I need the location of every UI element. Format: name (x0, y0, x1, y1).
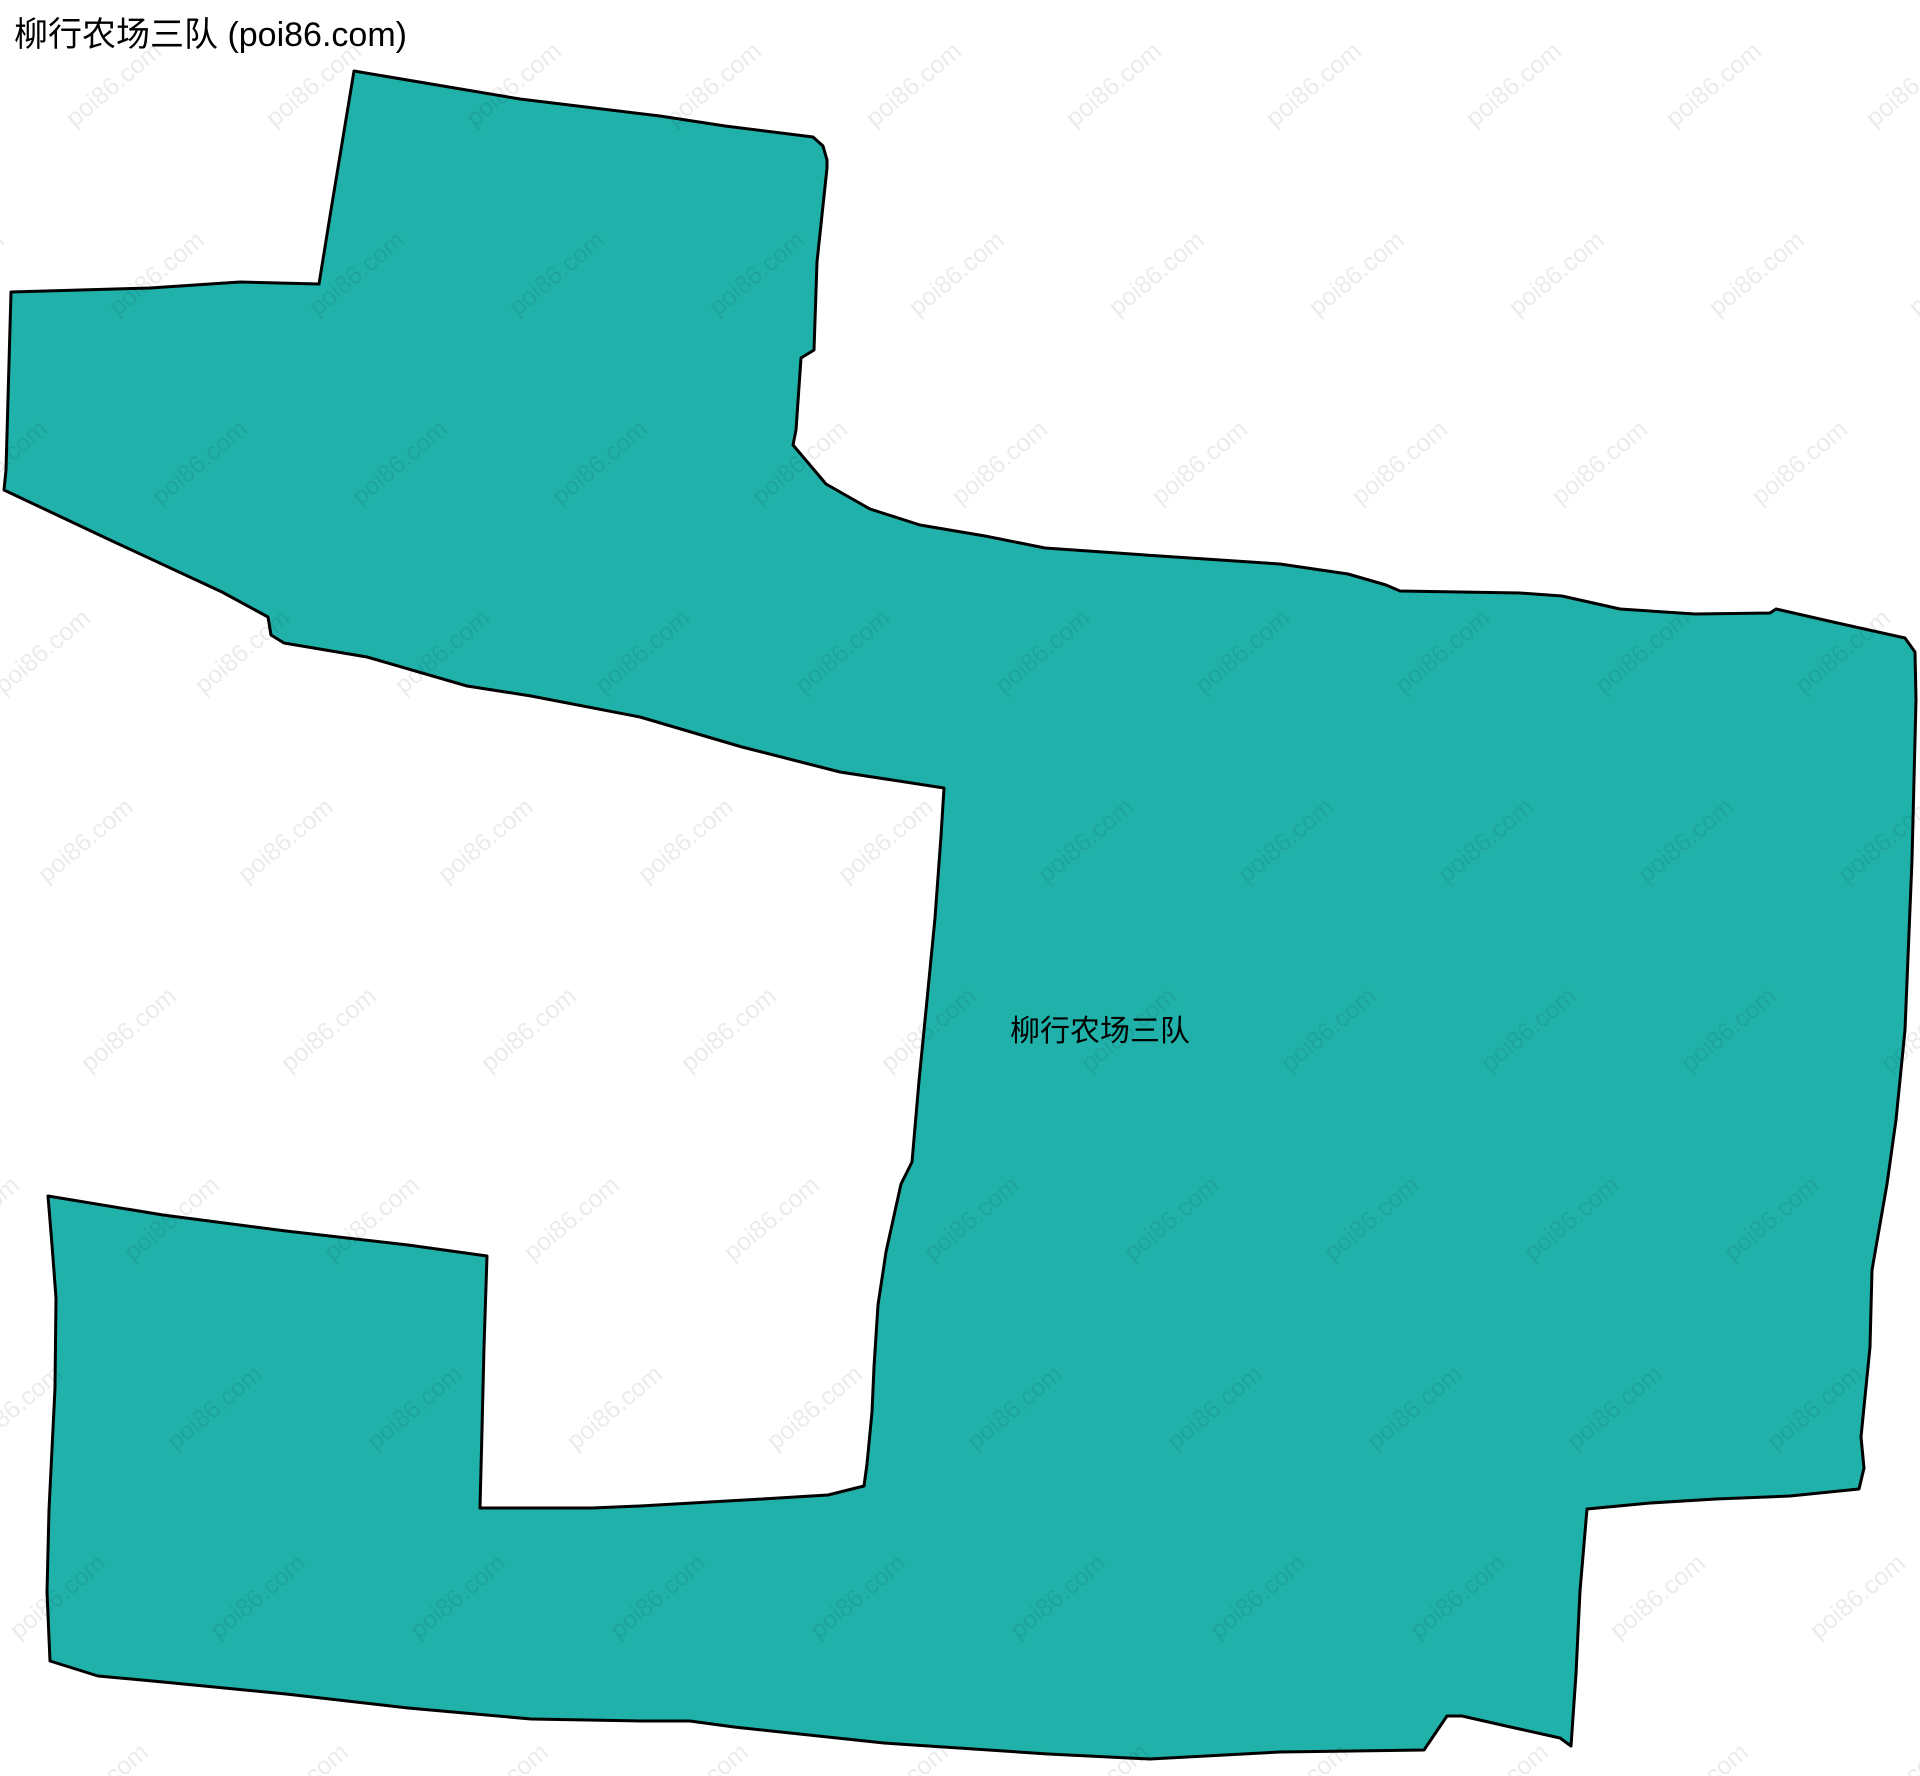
map-page: poi86.compoi86.compoi86.compoi86.compoi8… (0, 0, 1920, 1776)
region-polygon (4, 71, 1916, 1759)
region-label: 柳行农场三队 (1010, 1006, 1190, 1050)
page-title: 柳行农场三队 (poi86.com) (14, 16, 407, 55)
region-map (0, 0, 1920, 1776)
